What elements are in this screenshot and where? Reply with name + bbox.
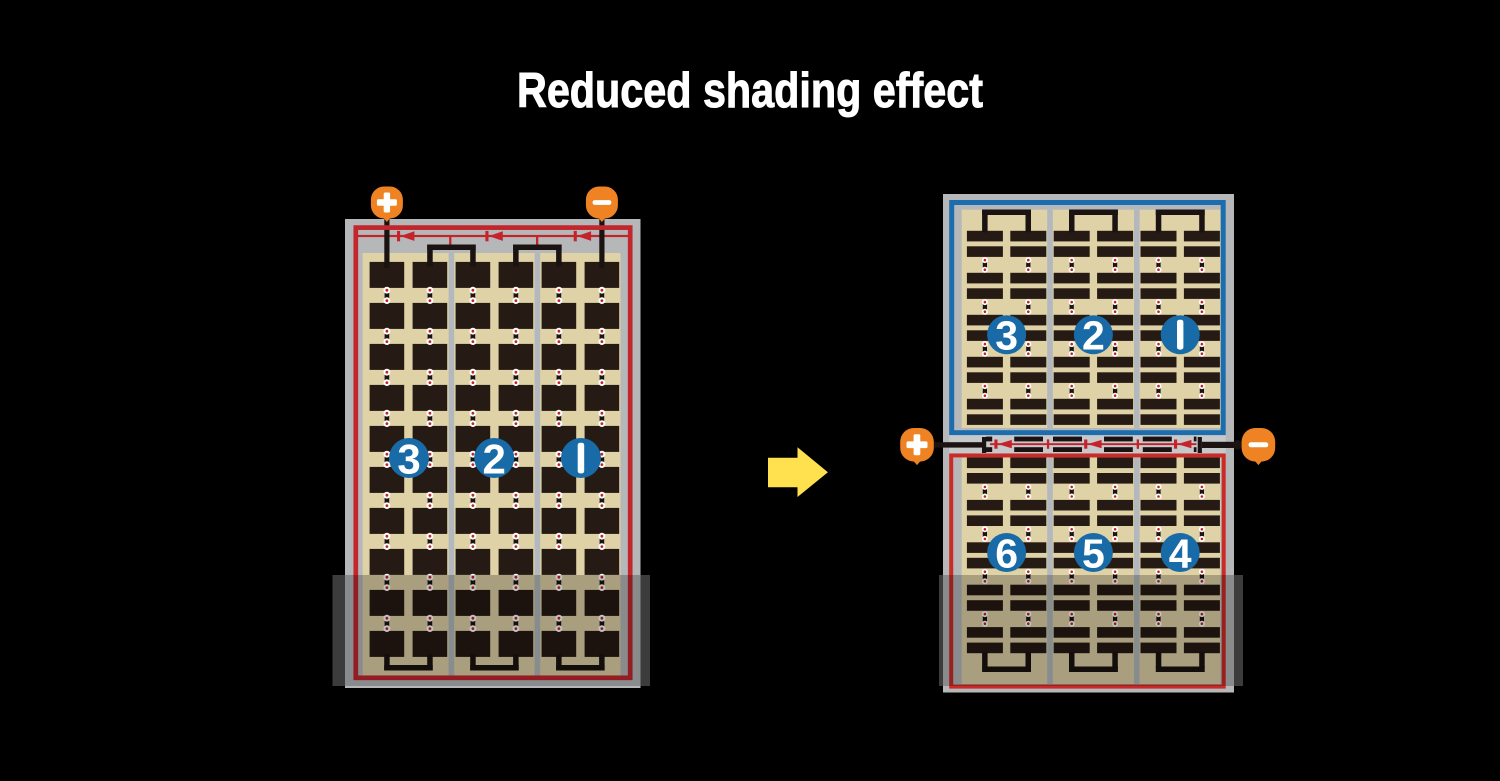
svg-text:2: 2 <box>483 435 506 482</box>
svg-text:2: 2 <box>1082 313 1105 359</box>
svg-text:5: 5 <box>1082 531 1105 577</box>
svg-text:Reduced shading effect: Reduced shading effect <box>517 64 983 118</box>
svg-text:4: 4 <box>1169 531 1192 577</box>
svg-text:6: 6 <box>995 531 1018 577</box>
svg-text:3: 3 <box>995 313 1018 359</box>
svg-text:3: 3 <box>397 435 420 482</box>
